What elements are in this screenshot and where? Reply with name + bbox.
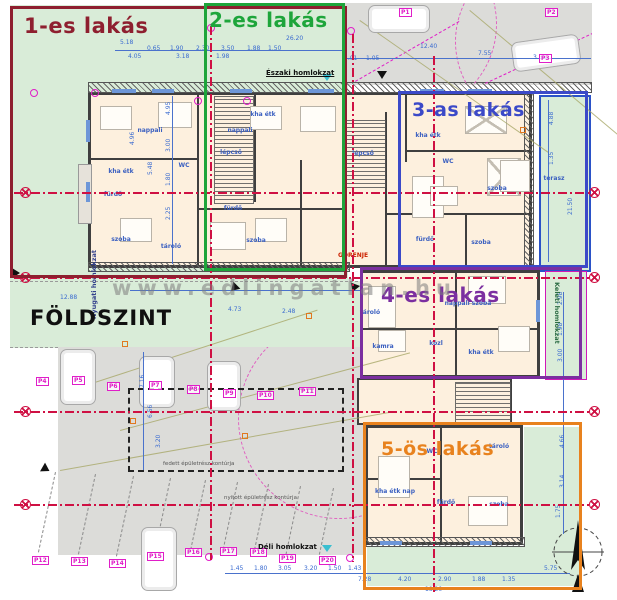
- parking-spot-label: P17: [220, 547, 237, 556]
- dimension-value: 2.48: [282, 309, 295, 315]
- utility-marker: [242, 433, 248, 439]
- section-axis-marker: [20, 499, 31, 510]
- staircase: [455, 382, 511, 424]
- parking-spot-label: P7: [149, 381, 162, 390]
- parking-spot-label: P11: [299, 387, 316, 396]
- dimension-value: 3.20: [156, 435, 162, 448]
- parking-spot-label: P10: [257, 391, 274, 400]
- apartment-label-1: 1-es lakás: [24, 14, 148, 38]
- section-axis-line: [14, 411, 592, 413]
- dimension-value: 7.55: [478, 51, 491, 57]
- utility-marker: [306, 313, 312, 319]
- parking-spot-label: P6: [107, 382, 120, 391]
- parking-spot-label: P5: [72, 376, 85, 385]
- section-axis-marker: [589, 187, 600, 198]
- parking-spot-label: P20: [319, 556, 336, 565]
- parking-spot-label: P9: [223, 389, 236, 398]
- dimension-value: 12.40: [420, 44, 437, 50]
- dimension-line: [343, 58, 591, 59]
- upper-floor-projection-outline: [128, 388, 344, 472]
- room-label: lépcső: [352, 150, 374, 157]
- apartment-boundary-2: [204, 3, 345, 271]
- utility-marker: [130, 418, 136, 424]
- parking-spot-label: P4: [36, 377, 49, 386]
- parking-spot-label: P8: [187, 385, 200, 394]
- dimension-value: 1.43: [348, 566, 361, 572]
- dimension-value: 1.80: [254, 566, 267, 572]
- dimension-value: 4.73: [228, 307, 241, 313]
- dimension-value: 1.45: [230, 566, 243, 572]
- section-axis-marker: [589, 499, 600, 510]
- parking-spot-divider: [38, 472, 56, 552]
- direction-arrow-icon: [40, 463, 52, 476]
- parking-spot-label: P14: [109, 559, 126, 568]
- benchmark-icon: [322, 545, 332, 552]
- apartment-label-2: 2-es lakás: [209, 8, 328, 32]
- facade-label-south: Déli homlokzat: [258, 543, 317, 551]
- parking-spot-label: P12: [32, 556, 49, 565]
- parking-spot-label: P2: [545, 8, 558, 17]
- dimension-value: 3.05: [278, 566, 291, 572]
- dimension-value: 1.05: [366, 56, 379, 62]
- dimension-value: 12.88: [60, 295, 77, 301]
- parking-spot-label: P15: [147, 552, 164, 561]
- utility-marker: [122, 341, 128, 347]
- parking-spot-label: P1: [399, 8, 412, 17]
- dimension-value: 7.16: [140, 375, 146, 388]
- dimension-value: 1.50: [328, 566, 341, 572]
- apartment-label-5: 5-ös lakás: [381, 438, 494, 460]
- dimension-value: 3.20: [304, 566, 317, 572]
- section-axis-marker: [589, 272, 600, 283]
- section-axis-marker: [589, 406, 600, 417]
- contour-note: nyitott épületrész kontúrja: [224, 495, 297, 501]
- watermark: www.edlingatlan.hu: [112, 276, 457, 300]
- section-axis-marker: [20, 406, 31, 417]
- floor-plan: FÖLDSZINT www.edlingatlan.hu Északi homl…: [0, 0, 617, 600]
- parking-spot-label: P3: [539, 54, 552, 63]
- floor-title: FÖLDSZINT: [30, 306, 172, 330]
- parking-spot-label: P16: [185, 548, 202, 557]
- parking-spot-label: P19: [279, 554, 296, 563]
- apartment-label-3: 3-as lakás: [412, 99, 525, 121]
- parking-spot-label: P13: [71, 557, 88, 566]
- direction-arrow-icon: [377, 71, 387, 79]
- contour-note: fedett épületrész kontúrja: [163, 461, 234, 467]
